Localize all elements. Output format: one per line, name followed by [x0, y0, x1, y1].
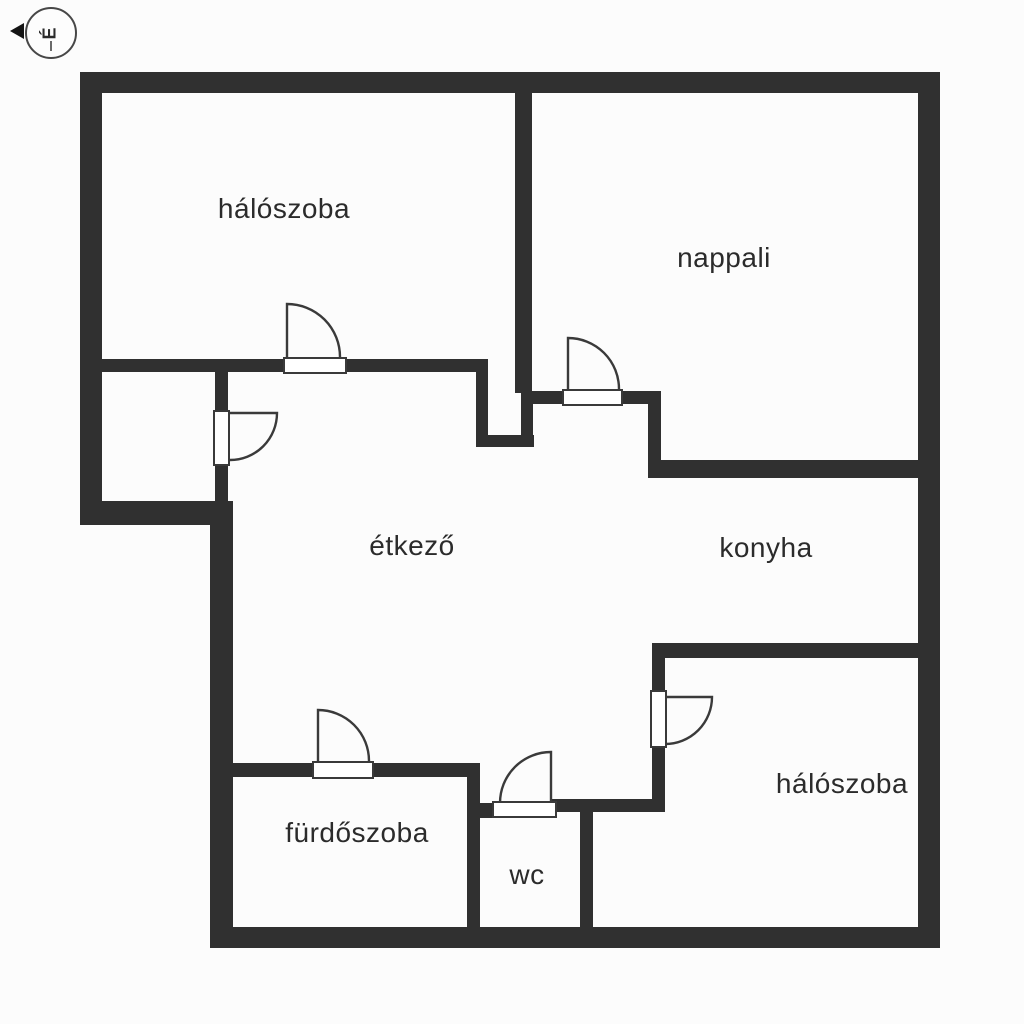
room-label-nappali: nappali	[677, 242, 771, 274]
floor-plan-canvas: É hálószoba nappali étkező konyha f	[0, 0, 1024, 1024]
door-arc-smallroom	[230, 413, 277, 460]
room-label-wc: wc	[509, 859, 544, 891]
door-arc-bedroom2	[665, 697, 712, 744]
room-label-furdoszoba: fürdőszoba	[285, 817, 429, 849]
door-arc-wc	[500, 752, 551, 803]
room-label-etkezo: étkező	[369, 530, 455, 562]
room-label-konyha: konyha	[719, 532, 812, 564]
door-arc-furdoszoba	[318, 710, 369, 761]
room-label-haloszoba-1: hálószoba	[218, 193, 350, 225]
door-arc-bedroom1	[287, 304, 340, 357]
room-label-haloszoba-2: hálószoba	[776, 768, 908, 800]
door-arc-nappali	[568, 338, 619, 389]
